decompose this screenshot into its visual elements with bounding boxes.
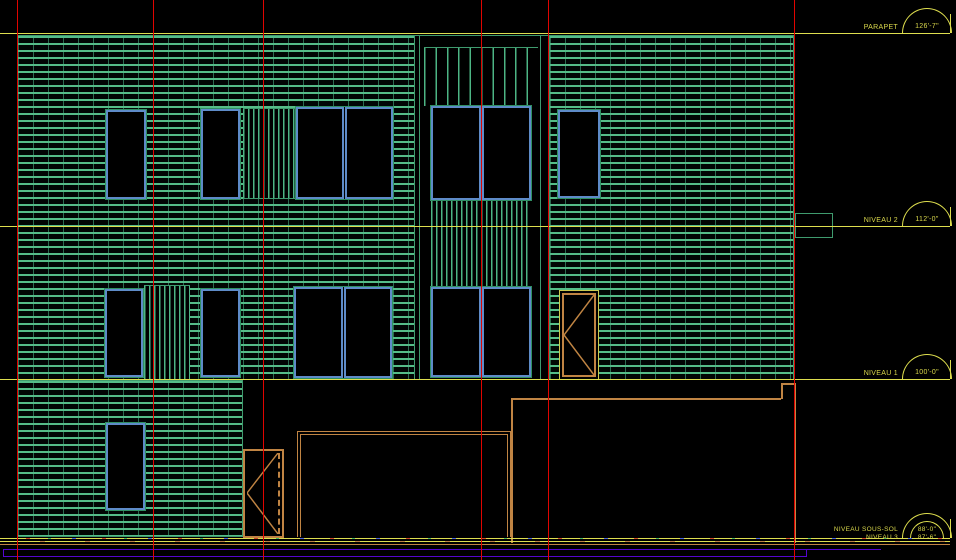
window-pane <box>431 287 481 377</box>
entry-door <box>559 290 599 380</box>
window-pane <box>345 107 393 199</box>
window-left-upper <box>106 110 146 199</box>
grid-line-2 <box>153 0 154 560</box>
site-line-end-right <box>806 549 807 557</box>
window-pane <box>431 106 481 200</box>
site-line-lower <box>3 556 807 557</box>
level-head-tick <box>950 14 951 33</box>
grid-line-6 <box>794 0 795 560</box>
window-pane <box>482 106 532 200</box>
window-pane <box>482 287 532 377</box>
basement-wall-left <box>511 398 513 543</box>
level-head-tick <box>950 519 951 538</box>
window-pane <box>294 287 343 378</box>
level-value-sous-sol: 88'-0" <box>905 526 949 533</box>
double-window-mid <box>294 287 392 378</box>
window-mid-mid <box>201 289 240 377</box>
grid-line-4 <box>481 0 482 560</box>
tower-parapet-edge <box>415 35 549 36</box>
level-label-niveau1: NIVEAU 1 <box>790 370 898 378</box>
level-value-niveau3: 87'-6" <box>905 534 949 541</box>
level-label-sous-sol: NIVEAU SOUS-SOL <box>760 526 898 533</box>
level-head-tick <box>950 360 951 379</box>
level-line-niveau2 <box>0 226 950 227</box>
window-right-upper <box>558 110 600 198</box>
level-line-parapet <box>0 33 950 34</box>
window-pane <box>296 107 344 199</box>
door-swing-symbol <box>564 295 594 375</box>
level-value-niveau1: 100'-0" <box>903 369 951 377</box>
level-label-niveau2: NIVEAU 2 <box>790 217 898 225</box>
tower-right-edge <box>540 35 541 380</box>
level-value-parapet: 126'-7" <box>903 23 951 31</box>
window-pane <box>344 287 393 378</box>
basement-wall-top <box>511 398 781 400</box>
window-left-mid <box>105 289 143 377</box>
cad-viewport[interactable]: PARAPET 126'-7" NIVEAU 2 112'-0" NIVEAU … <box>0 0 956 560</box>
slat-screen-level3 <box>243 108 296 199</box>
basement-wall-step <box>781 383 783 399</box>
grid-line-1 <box>17 0 18 560</box>
double-window-upper <box>296 107 393 199</box>
level-line-niveau3 <box>0 541 950 542</box>
window-mid-upper <box>201 109 240 199</box>
level-label-niveau3: NIVEAU 3 <box>760 534 898 541</box>
tower-left-edge <box>419 35 420 380</box>
grade-line-tan <box>0 544 950 545</box>
window-left-basement <box>106 423 145 510</box>
basement-wall-step-top <box>781 383 795 385</box>
slat-screen-level2 <box>144 285 190 380</box>
level-label-parapet: PARAPET <box>790 24 898 32</box>
level-line-niveau1 <box>0 379 950 380</box>
level-value-niveau2: 112'-0" <box>903 216 951 224</box>
site-line-end-left <box>3 549 4 557</box>
grid-line-3 <box>263 0 264 560</box>
grid-line-5 <box>548 0 549 560</box>
garage-opening-frame <box>297 431 511 537</box>
level-head-tick <box>950 207 951 226</box>
site-line-upper <box>3 549 881 550</box>
